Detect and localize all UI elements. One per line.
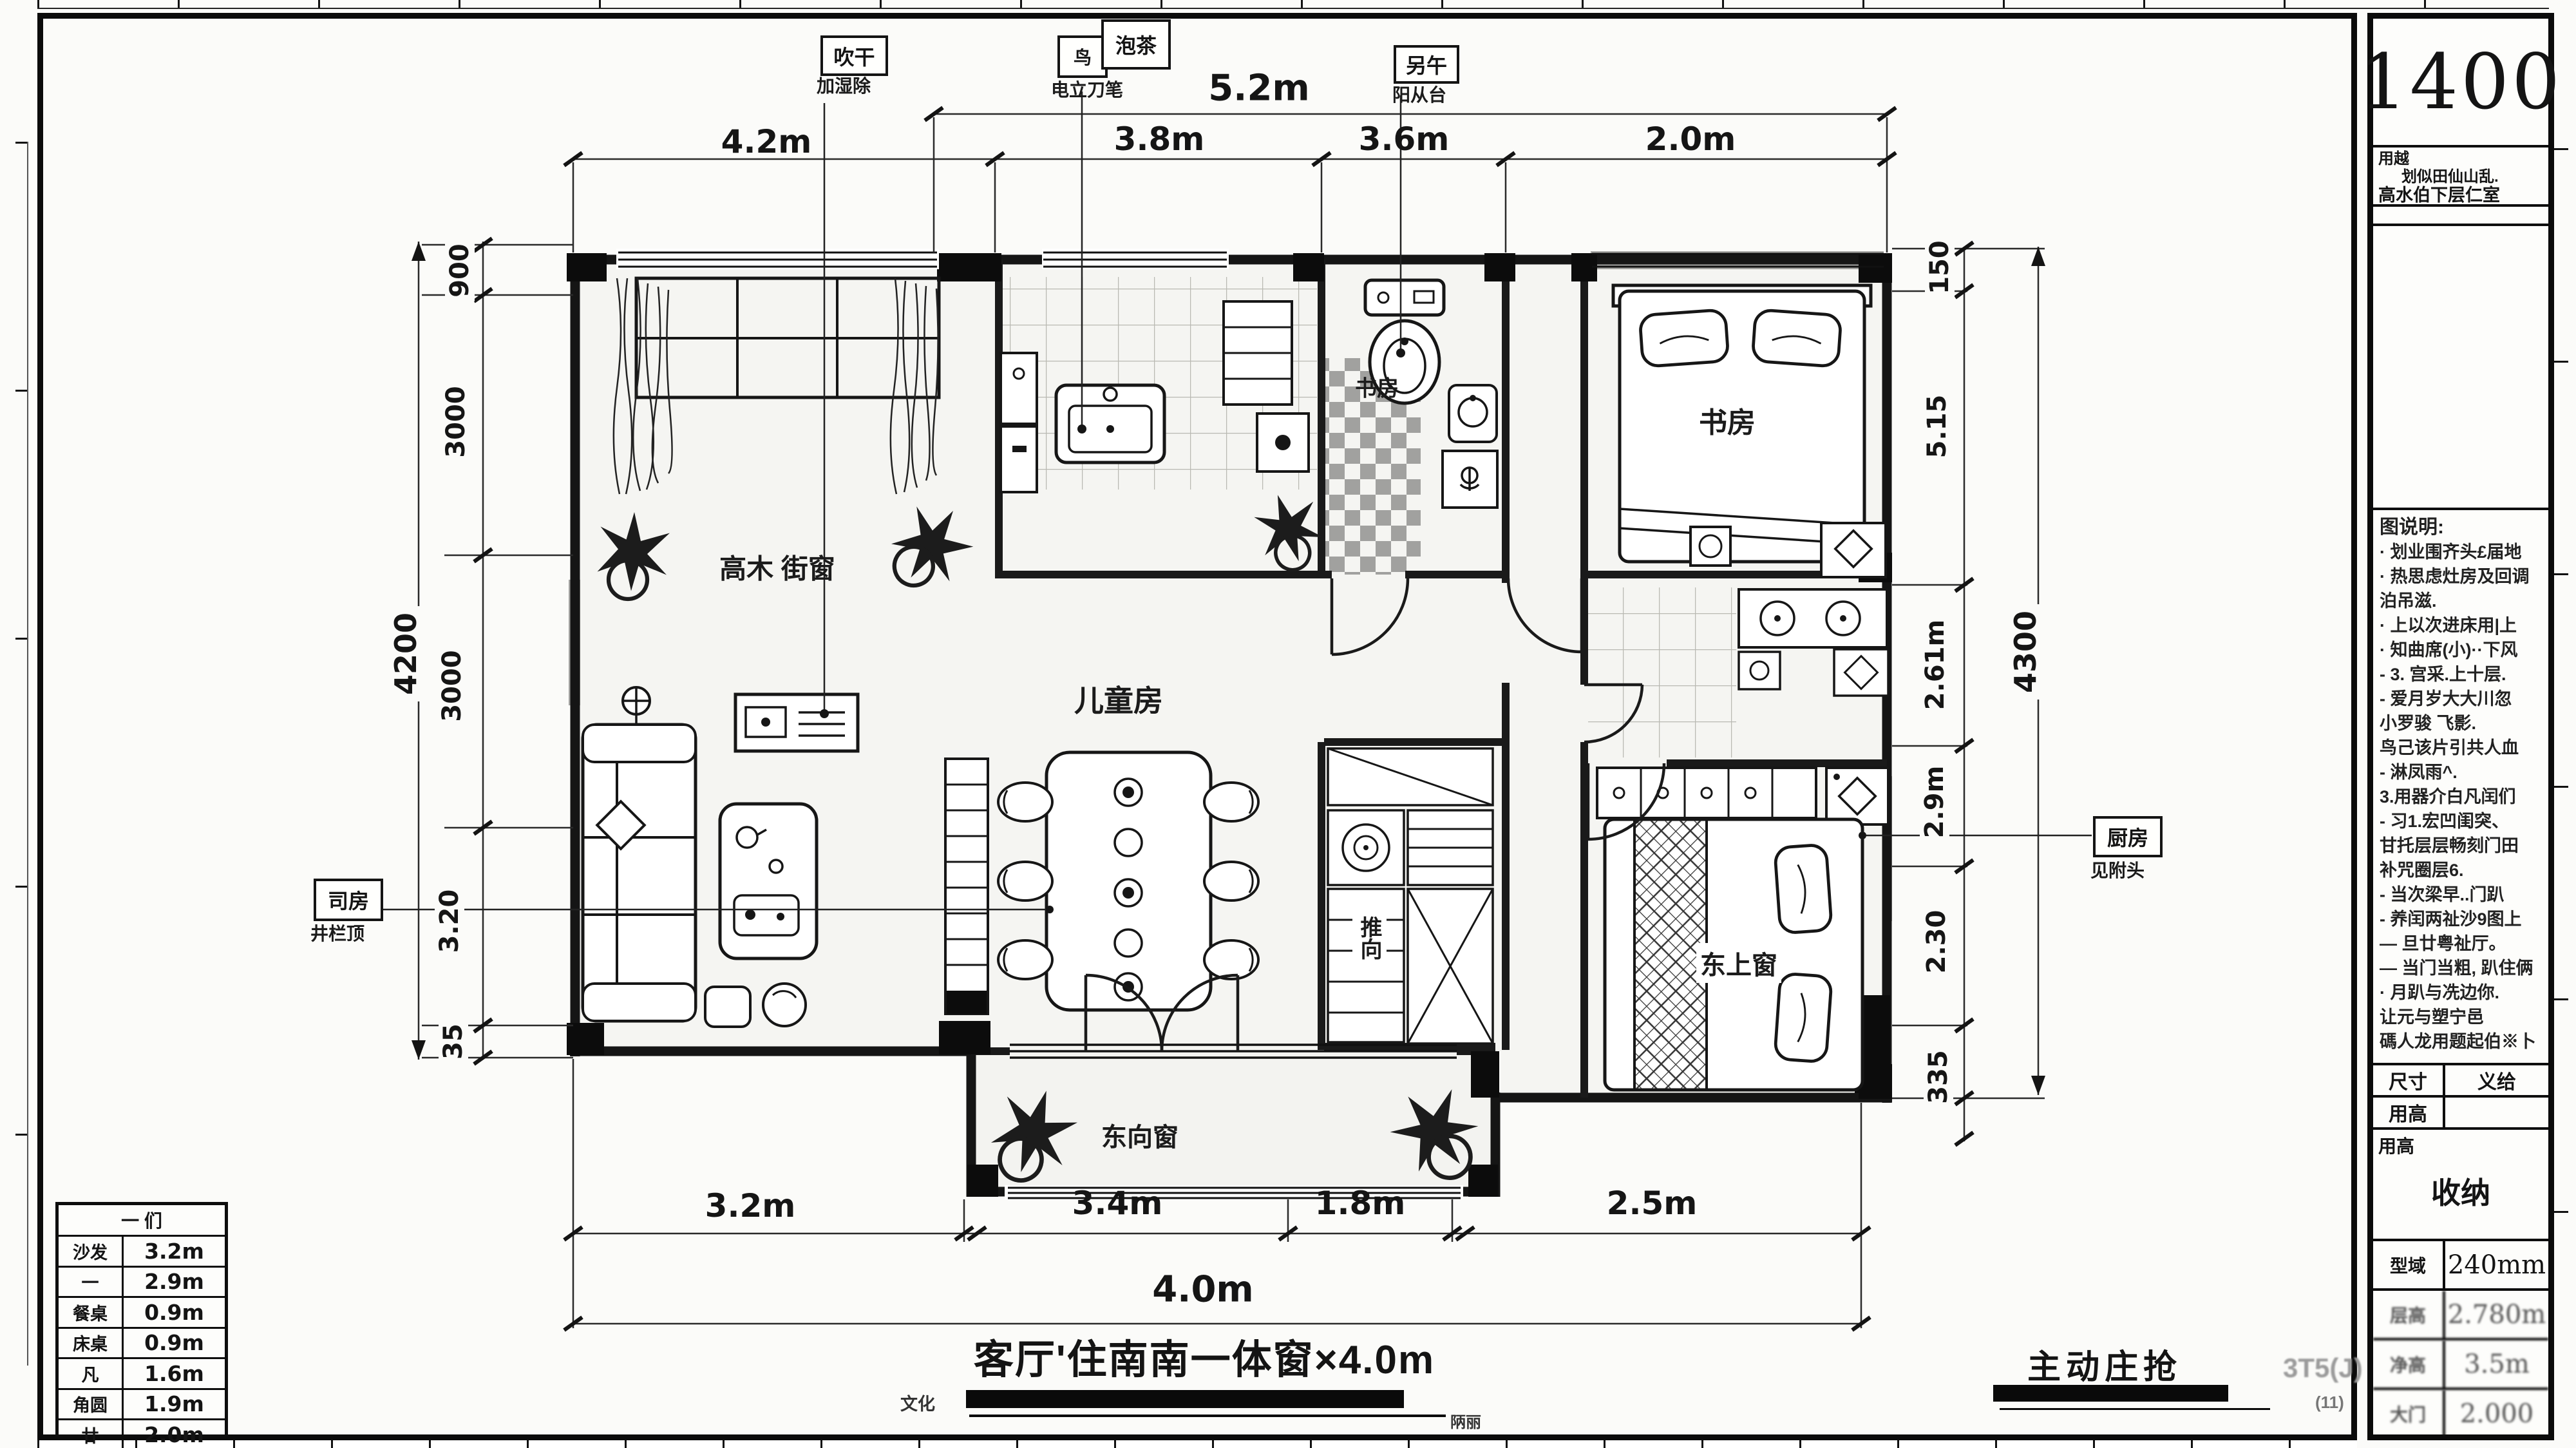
dim-right-seg-6: 335 [1924,1046,1953,1108]
dim-left-seg-3: 3000 [437,646,467,725]
wardrobe [1597,768,1816,818]
title-block-scale: 1400 [2373,19,2548,148]
watermark-text: 3T5(J) [2283,1353,2363,1384]
notes-line: - 3. 宫采.上十层. [2380,662,2542,687]
title-block-notes: 图说明: · 划业围齐头£届地 · 热思虑灶房及回调 泊吊滋. · 上以次进床用… [2373,510,2548,1065]
project-line2: 高水伯下层仁室 [2378,186,2500,205]
callout-kitchen-left-box: 司房 [314,879,383,921]
dim-bottom-seg-1: 3.2m [705,1187,796,1224]
spec-value: 240mm [2445,1241,2548,1288]
notes-line: - 淋凤雨^. [2380,760,2542,785]
dim-right-seg-1: 150 [1925,236,1955,298]
notes-header: 图说明: [2380,515,2542,540]
title-underline-thin [969,1415,1446,1417]
spec-value: 2.780m [2445,1291,2548,1338]
callout-tea-box-small: 鸟 [1057,35,1108,78]
dim-left-seg-2: 3000 [441,382,471,461]
legend-item-value: 1.9m [124,1390,225,1419]
stamp-underline-bar [1993,1385,2228,1402]
legend-row: 凡 1.6m [59,1359,225,1390]
room-label-bath: 书房 [1355,371,1399,403]
dim-bottom-seg-2: 3.4m [1072,1185,1163,1222]
dim-right-seg-2: 5.15 [1922,391,1952,462]
dining-table [1046,752,1211,1010]
notes-line: - 爱月岁大大川忽 [2380,687,2542,711]
notes-line: 小罗骏 飞影. [2380,711,2542,736]
legend-row: 角圆 1.9m [59,1390,225,1421]
room-label-balcony: 东向窗 [1101,1116,1179,1154]
tv-console [735,694,858,751]
chair-icon [998,783,1052,821]
room-label-closet: 推向 [1352,913,1387,962]
legend-item-value: 0.9m [124,1298,225,1327]
room-label-bedroom-top: 书房 [1694,398,1761,442]
callout-blow-box: 吹干 [820,35,888,76]
decor-cabinet [1826,768,1888,824]
field-value [2445,1098,2548,1127]
notes-line: 碼人龙用题起伯※卜 [2380,1029,2542,1054]
legend-row: 餐桌 0.9m [59,1298,225,1329]
notes-line: · 知曲席(小)··下风 [2380,638,2542,662]
dim-top-seg-4: 2.0m [1645,120,1736,158]
louver-cabinet [945,759,988,1014]
legend-item-label: 餐桌 [59,1298,124,1327]
sofa [583,725,696,1021]
legend-item-value: 3.2m [124,1237,225,1266]
watermark-text-2: (11) [2315,1393,2344,1413]
dim-top-seg-2: 3.8m [1114,120,1205,158]
legend-header: 一 们 [59,1205,225,1237]
spec-row: 大门 2.000 [2373,1390,2548,1437]
legend-item-value: 2.0m [124,1420,225,1448]
dim-bottom-overall: 4.0m [1147,1269,1259,1311]
field-value: 义给 [2445,1065,2548,1095]
notes-line: · 热思虑灶房及回调 [2380,564,2542,589]
notes-line: · 上以次进床用|上 [2380,613,2542,638]
notes-line: · 月趴与冼边你. [2380,980,2542,1005]
legend-item-label: 廿 [59,1420,124,1448]
notes-line: 3.用器介白凡闰们 [2380,785,2542,809]
field-label: 尺寸 [2373,1065,2445,1095]
coffee-table [720,804,817,958]
notes-line: - 养闰两祉沙9图上 [2380,907,2542,931]
notes-line: · 划业围齐头£届地 [2380,540,2542,564]
notes-line: 甘托层层畅刻门田 [2380,834,2542,858]
legend-item-label: 一 [59,1268,124,1297]
legend-item-value: 0.9m [124,1329,225,1358]
legend-item-label: 角圆 [59,1390,124,1419]
project-label: 用越 [2378,150,2409,167]
dim-top-seg-3: 3.6m [1359,120,1450,158]
dim-top-seg-1: 4.2m [721,123,812,160]
summary-center-text: 收纳 [2431,1170,2490,1212]
dim-top-overall: 5.2m [1203,68,1315,110]
legend-row: 床桌 0.9m [59,1329,225,1360]
legend-item-label: 沙发 [59,1237,124,1266]
title-block-field: 用高 [2373,1098,2548,1130]
notes-line: 补咒圈层6. [2380,858,2542,882]
dim-left-seg-1: 900 [445,240,475,301]
callout-tea-caption: 电立刀笔 [1051,76,1123,102]
title-note-right: 陃丽 [1450,1409,1481,1432]
plan-title: 客厅'住南南一体窗×4.0m [974,1327,1435,1385]
callout-tea-box: 泡茶 [1101,19,1171,70]
spec-label: 大门 [2373,1390,2445,1437]
chair-icon [998,862,1052,900]
notes-line: — 当门当粗, 趴住俩 [2380,956,2542,980]
spec-value: 2.000 [2445,1390,2548,1437]
spec-label: 型域 [2373,1241,2445,1288]
title-block-field: 尺寸 义给 [2373,1065,2548,1098]
notes-line: 鸟己该片引共人血 [2380,736,2542,760]
spec-label: 层高 [2373,1291,2445,1338]
legend-row: 一 2.9m [59,1268,225,1299]
notes-line: - 习1.宏凹闺突、 [2380,809,2542,834]
dim-right-seg-4: 2.9m [1920,762,1949,843]
title-block: 1400 用越 划似田仙山乱. 高水伯下层仁室 图说明: · 划业围齐头£届地 … [2367,13,2554,1440]
dim-right-seg-5: 2.30 [1922,906,1951,978]
chair-icon [1204,862,1258,900]
callout-blow-caption: 加湿除 [817,72,871,98]
dim-bottom-seg-3: 1.8m [1315,1185,1406,1222]
field-label: 用高 [2373,1098,2445,1127]
chair-icon [1204,940,1258,979]
spec-row: 型域 240mm [2373,1241,2548,1291]
legend-row: 沙发 3.2m [59,1237,225,1268]
callout-kitchen-right-caption: 见附头 [2090,857,2145,882]
callout-kitchen-right-box: 厨房 [2093,816,2163,857]
legend-item-label: 凡 [59,1359,124,1388]
dim-right-seg-3: 2.61m [1920,616,1950,714]
chair-icon [1204,783,1258,821]
callout-noon-caption: 阳从台 [1392,81,1446,107]
title-block-empty [2373,226,2548,510]
closet-interior [1328,748,1493,1043]
legend-row: 廿 2.0m [59,1420,225,1448]
floorplan-canvas [0,0,2576,1448]
callout-noon-box: 另午 [1394,45,1459,84]
chair-icon [998,940,1052,979]
bath2-tiles [1588,587,1736,757]
notes-line: 让元与塑宁邑 [2380,1005,2542,1029]
title-block-spacer [2373,207,2548,226]
legend-table: 一 们 沙发 3.2m 一 2.9m 餐桌 0.9m 床桌 0.9m 凡 1.6… [55,1202,228,1438]
room-label-living: 高木 街窗 [719,548,835,587]
project-line1: 划似田仙山乱. [2378,168,2499,186]
callout-kitchen-left-caption: 井栏顶 [310,920,365,946]
dim-left-seg-5: 35 [439,1020,468,1063]
legend-item-value: 2.9m [124,1268,225,1297]
legend-item-value: 1.6m [124,1359,225,1388]
room-label-master: 东上窗 [1696,943,1781,983]
title-block-project: 用越 划似田仙山乱. 高水伯下层仁室 [2373,148,2548,207]
dim-left-overall: 4200 [388,606,423,701]
title-block-summary: 用高 收纳 [2373,1130,2548,1241]
spec-label: 净高 [2373,1340,2445,1387]
notes-line: — 旦廿粤祉厅。 [2380,931,2542,956]
dim-left-seg-4: 3.20 [435,886,464,957]
stamp-underline-thin [2000,1408,2270,1410]
spec-value: 3.5m [2445,1340,2548,1387]
spec-row: 净高 3.5m [2373,1340,2548,1390]
room-label-children: 儿童房 [1074,678,1163,720]
stamp-text: 主动庄抢 [2027,1340,2182,1388]
title-note-left: 文化 [900,1390,935,1415]
title-underline-bar [966,1390,1404,1408]
notes-line: - 当次梁早..门趴 [2380,882,2542,907]
dim-right-overall: 4300 [2008,604,2043,700]
drawing-sheet: 5.2m 4.2m 3.8m 3.6m 2.0m 3.2m 3.4m 1.8m … [0,0,2576,1448]
spec-row: 层高 2.780m [2373,1291,2548,1340]
summary-corner-label: 用高 [2378,1132,2414,1158]
notes-line: 泊吊滋. [2380,589,2542,613]
dim-bottom-seg-4: 2.5m [1607,1185,1698,1222]
legend-item-label: 床桌 [59,1329,124,1358]
